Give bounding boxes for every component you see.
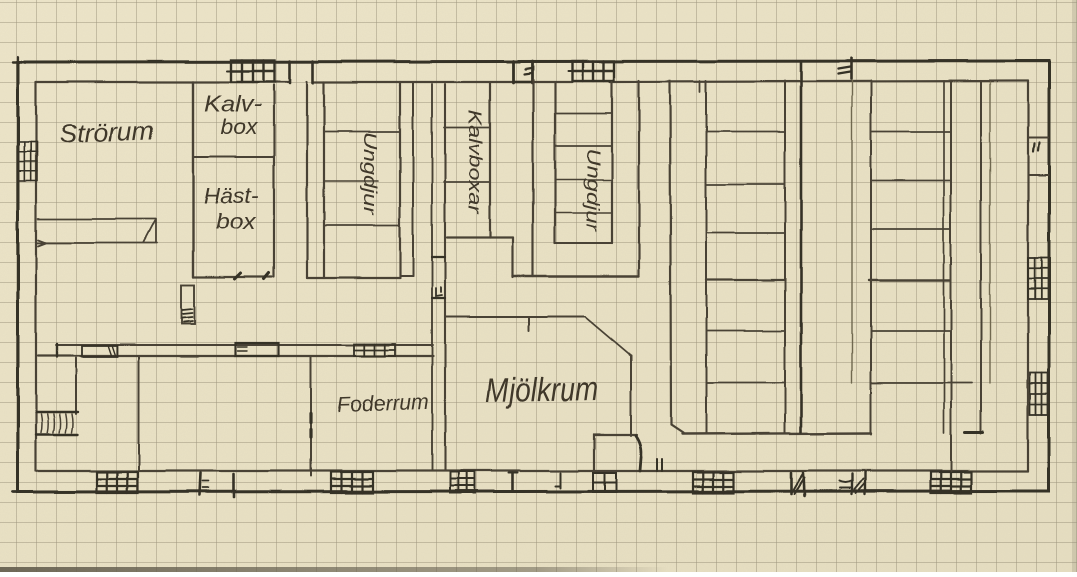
svg-text:Ungdjur: Ungdjur: [360, 132, 380, 215]
svg-text:box: box: [221, 114, 259, 139]
svg-text:Ungdjur: Ungdjur: [583, 149, 603, 233]
svg-text:Foderrum: Foderrum: [336, 390, 429, 416]
svg-text:Kalv-: Kalv-: [204, 91, 262, 116]
svg-text:Häst-: Häst-: [204, 183, 259, 208]
svg-text:Strörum: Strörum: [59, 115, 155, 148]
svg-text:Mjölkrum: Mjölkrum: [485, 370, 599, 410]
svg-text:Kalvboxar: Kalvboxar: [465, 109, 485, 214]
svg-text:box: box: [215, 209, 256, 234]
